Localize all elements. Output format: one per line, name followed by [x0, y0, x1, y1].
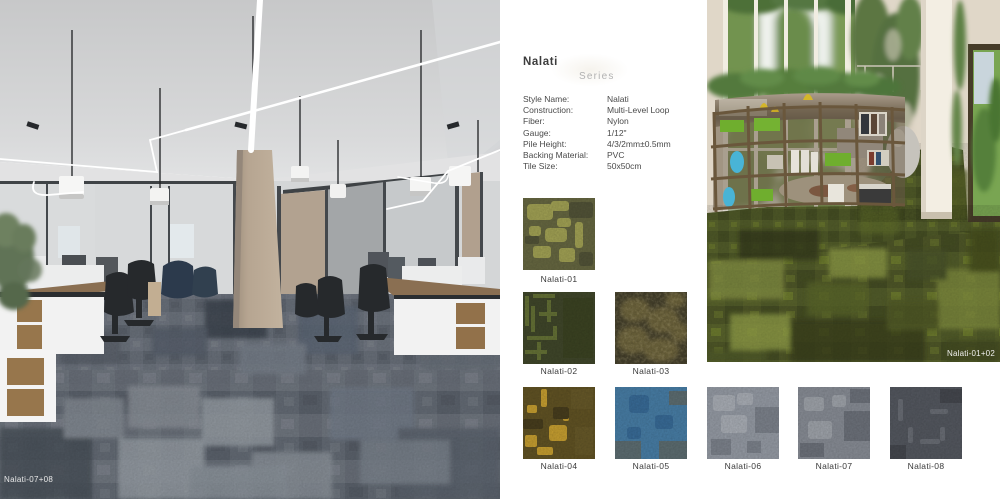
svg-text:Nalati-01+02: Nalati-01+02 [947, 349, 995, 358]
svg-text:Nalati-07+08: Nalati-07+08 [4, 475, 53, 484]
